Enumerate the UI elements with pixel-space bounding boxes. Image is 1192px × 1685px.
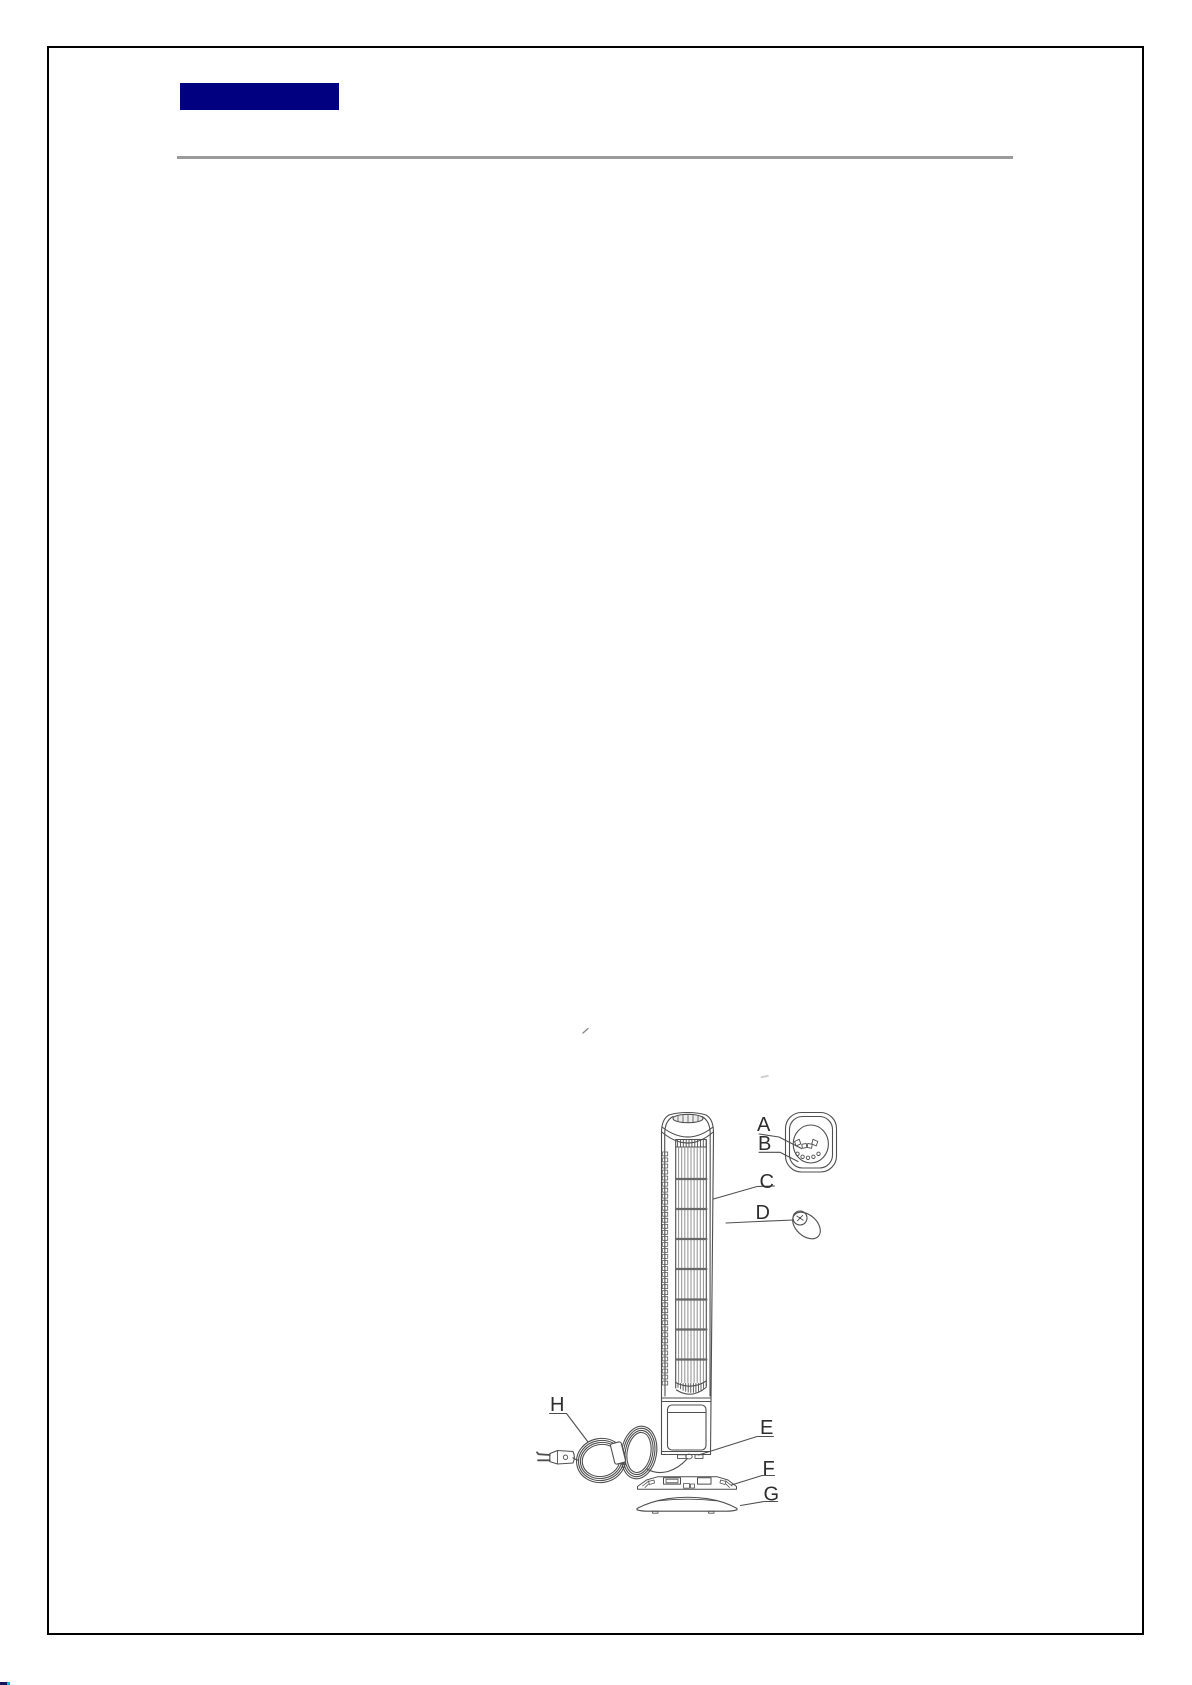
power-plug <box>537 1451 574 1465</box>
base-plate <box>637 1497 737 1513</box>
leader-e <box>699 1437 774 1456</box>
tower-fan-diagram: A B C D E F G H <box>0 0 1192 1685</box>
cord-coil <box>573 1423 661 1486</box>
part-label-h: H <box>550 1394 564 1416</box>
faint-mark <box>762 1076 769 1077</box>
manual-page: A B C D E F G H <box>0 0 1192 1685</box>
part-label-e: E <box>760 1417 773 1439</box>
base-housing-panel <box>668 1405 707 1450</box>
control-panel <box>786 1113 837 1173</box>
cord-tie-band <box>610 1441 626 1464</box>
part-label-f: F <box>763 1458 775 1480</box>
part-label-g: G <box>764 1484 780 1506</box>
remote-control <box>788 1207 826 1244</box>
part-label-d: D <box>756 1202 770 1224</box>
part-label-c: C <box>760 1171 774 1193</box>
scan-speck <box>583 1029 588 1034</box>
air-outlet-grill <box>676 1140 707 1395</box>
leader-h <box>550 1414 589 1443</box>
collar-curves <box>662 1127 713 1143</box>
base-bracket <box>638 1477 737 1489</box>
part-label-b: B <box>758 1133 771 1155</box>
